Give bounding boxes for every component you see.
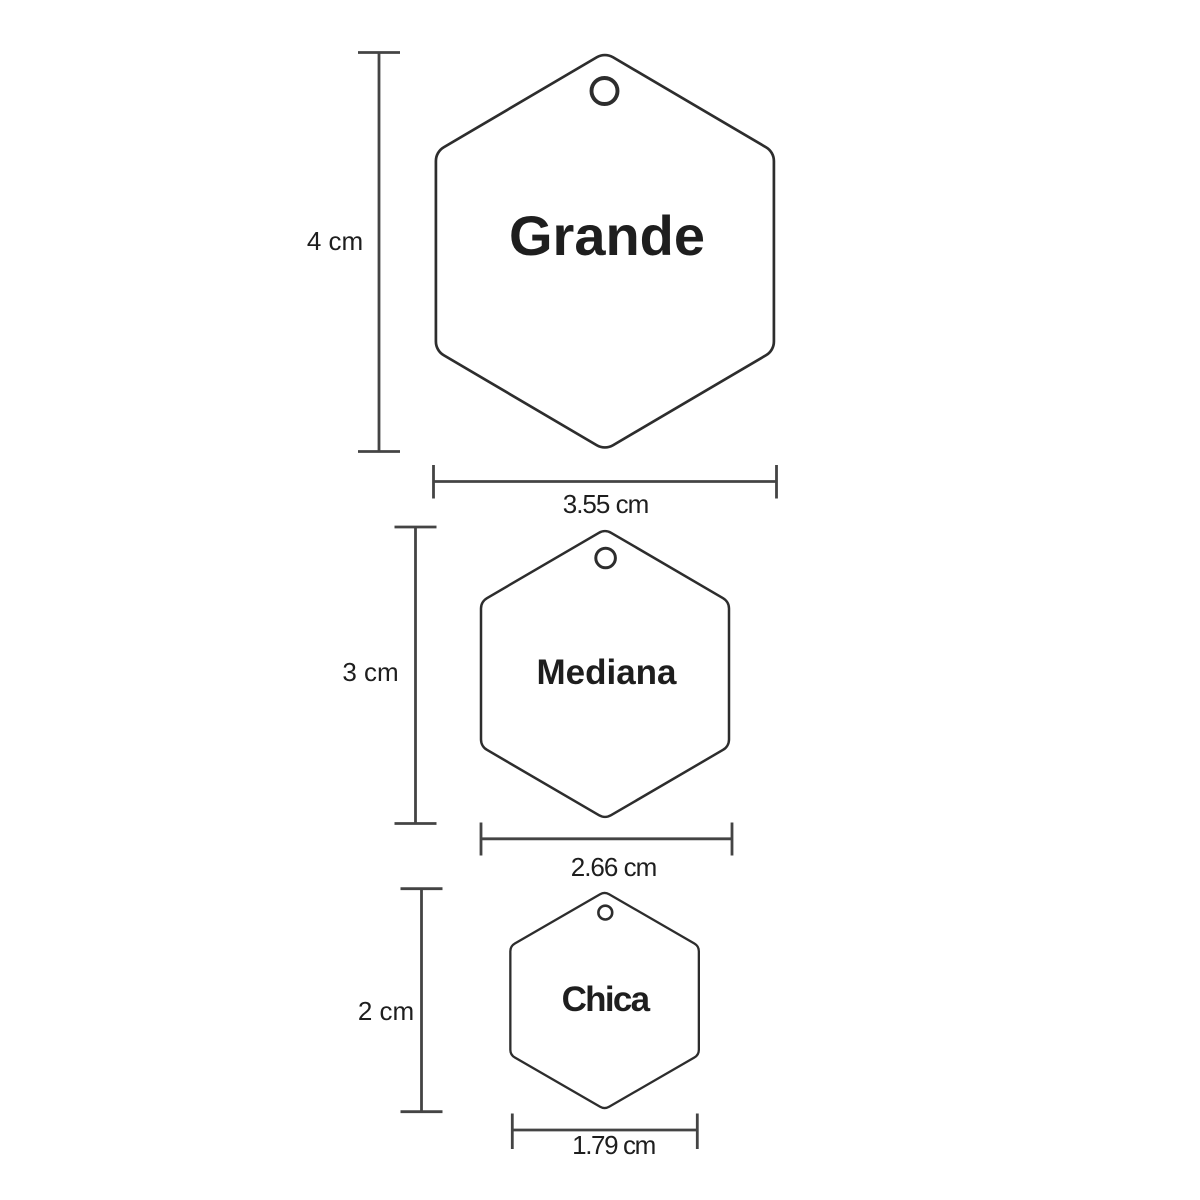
svg-text:2.66 cm: 2.66 cm [571, 852, 657, 882]
svg-text:Chica: Chica [562, 980, 651, 1019]
svg-text:Grande: Grande [509, 204, 705, 267]
svg-text:2 cm: 2 cm [358, 996, 414, 1026]
svg-text:1.79 cm: 1.79 cm [572, 1130, 655, 1160]
svg-text:4 cm: 4 cm [307, 226, 363, 256]
svg-text:3.55 cm: 3.55 cm [563, 489, 649, 519]
svg-text:3 cm: 3 cm [342, 657, 398, 687]
svg-text:Mediana: Mediana [536, 653, 677, 692]
